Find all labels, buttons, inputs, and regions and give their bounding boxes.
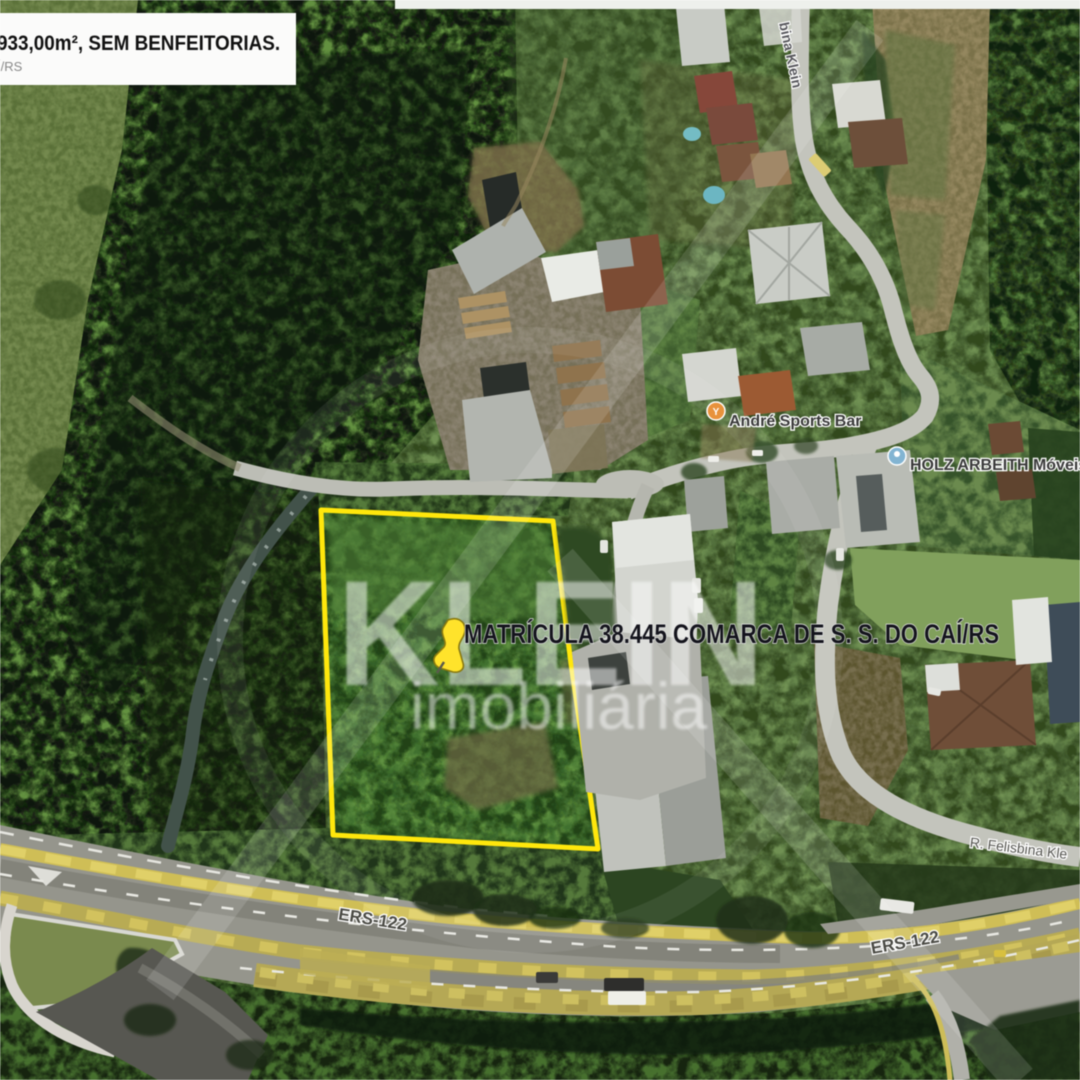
- svg-text:imobiliária: imobiliária: [410, 669, 707, 743]
- svg-text:HOLZ ARBEITH Móveis: HOLZ ARBEITH Móveis: [910, 457, 1080, 474]
- svg-text:Í/RS: Í/RS: [0, 59, 23, 74]
- svg-text:Y: Y: [713, 407, 720, 418]
- svg-text:933,00m², SEM BENFEITORIAS.: 933,00m², SEM BENFEITORIAS.: [0, 32, 280, 55]
- svg-text:André Sports Bar: André Sports Bar: [729, 413, 861, 430]
- svg-text:MATRÍCULA 38.445 COMARCA DE S.: MATRÍCULA 38.445 COMARCA DE S. S. DO CAÍ…: [464, 619, 999, 650]
